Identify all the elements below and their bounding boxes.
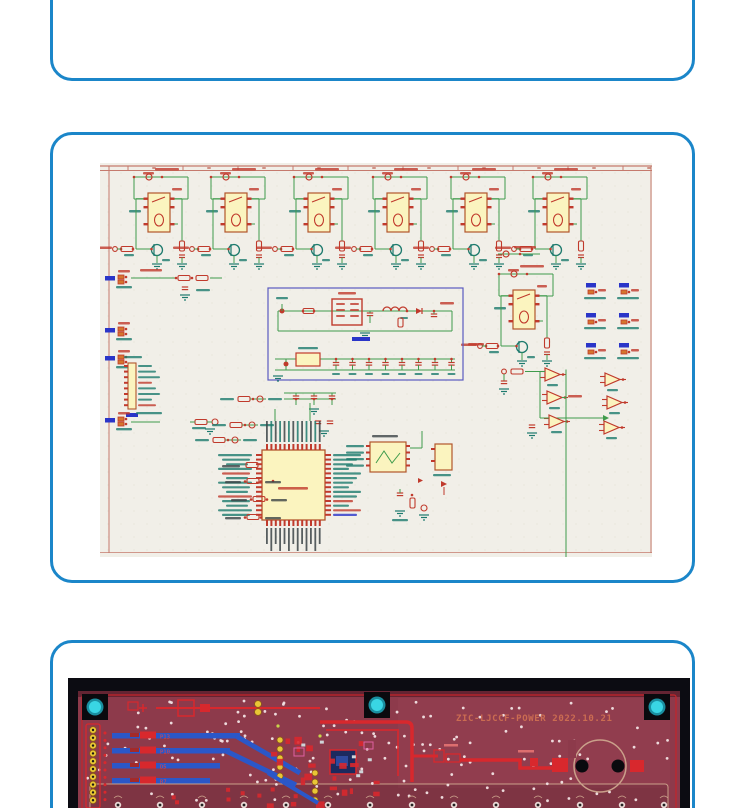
mounting-hole bbox=[364, 692, 390, 718]
pcb-pad-label: D5 bbox=[160, 765, 167, 771]
circuit-schematic-image bbox=[100, 163, 652, 557]
content-card-top bbox=[50, 0, 695, 81]
pcb-silkscreen-title: ZIC-LJCCF-POWER 2022.10.21 bbox=[456, 714, 612, 724]
pcb-pad-label: R7 bbox=[160, 780, 167, 786]
mounting-hole bbox=[82, 694, 108, 720]
pcb-layout-image: P13P10D5R7ZIC-LJCCF-POWER 2022.10.21 bbox=[68, 678, 690, 808]
document-page: P13P10D5R7ZIC-LJCCF-POWER 2022.10.21 bbox=[0, 0, 750, 808]
pcb-pad-label: P10 bbox=[160, 750, 170, 756]
mounting-hole bbox=[644, 694, 670, 720]
pcb-pad-label: P13 bbox=[160, 735, 170, 741]
